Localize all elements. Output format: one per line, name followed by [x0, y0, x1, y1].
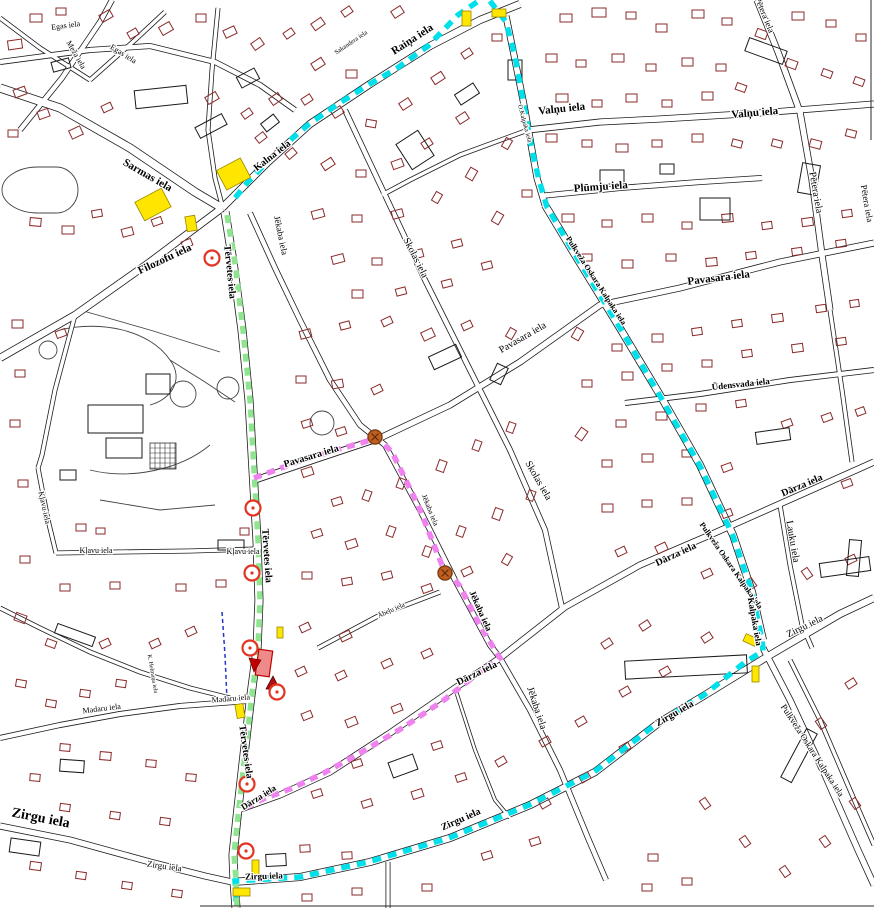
building [352, 888, 362, 895]
building [10, 420, 20, 427]
building [626, 12, 636, 19]
building [771, 313, 783, 322]
street-label: Sakandera iela [333, 29, 369, 56]
building [626, 94, 637, 102]
building [101, 102, 113, 113]
highlighted-object [752, 666, 759, 682]
building [12, 320, 23, 328]
street-label: Zirgu iela [245, 870, 284, 881]
building [7, 39, 22, 50]
building [56, 8, 66, 15]
building [176, 584, 186, 591]
building [15, 370, 25, 377]
park-path [80, 310, 220, 352]
building [841, 479, 853, 489]
building [381, 571, 392, 580]
building [826, 20, 836, 27]
building [45, 639, 57, 649]
building [395, 287, 406, 296]
building [335, 427, 347, 437]
building [602, 220, 612, 227]
street-label: Dārza iela [455, 659, 499, 688]
street-label: Jēkaba iela [272, 215, 290, 256]
building [612, 344, 622, 351]
park-path [60, 326, 176, 405]
building [149, 638, 161, 649]
building [339, 321, 350, 330]
building [361, 799, 373, 809]
bus-stop-dot-icon [244, 849, 247, 852]
building [441, 279, 452, 288]
street-label: Pētera iela [753, 0, 776, 34]
building [662, 364, 672, 371]
building [451, 239, 462, 248]
building [648, 854, 658, 861]
building [652, 140, 662, 147]
building [456, 526, 466, 538]
building [91, 209, 102, 218]
building [431, 741, 443, 751]
building [562, 214, 574, 222]
building [300, 845, 310, 853]
public-building [755, 428, 790, 445]
building [592, 100, 602, 107]
building [335, 670, 347, 681]
route-cyan-raina [231, 2, 477, 203]
building [8, 130, 18, 137]
building [299, 622, 311, 633]
public-building [700, 198, 730, 220]
building [855, 407, 866, 417]
building [465, 167, 477, 181]
street-label: Pulkveža Oskara Kalpaka iela [564, 235, 628, 327]
building [216, 580, 226, 587]
building [311, 529, 323, 539]
street-label: Zirgu iela [654, 699, 696, 730]
building [121, 227, 134, 238]
building [421, 138, 433, 149]
building [122, 881, 133, 889]
building [576, 60, 586, 67]
building [381, 316, 393, 327]
building [60, 803, 71, 811]
building [110, 811, 121, 819]
route-magenta-loop [241, 438, 500, 810]
highlighted-object [185, 215, 197, 232]
building [842, 209, 853, 217]
building [666, 254, 676, 261]
street-label: Plūmju iela [573, 179, 628, 195]
bus-stop-dot-icon [248, 646, 251, 649]
building [682, 878, 692, 885]
street-label: Pulkveža Oskara Kalpaka iela [779, 702, 846, 798]
public-building [819, 557, 870, 578]
park-circle [310, 411, 334, 435]
building [582, 380, 592, 387]
building [80, 689, 91, 697]
building [616, 144, 628, 152]
building [706, 258, 718, 267]
building [850, 299, 860, 307]
building [619, 686, 631, 697]
building [522, 190, 532, 197]
building [345, 538, 358, 549]
building [602, 504, 613, 512]
building [492, 507, 503, 520]
building [809, 139, 822, 150]
road-casing [0, 701, 247, 738]
building [701, 632, 713, 643]
street-label: Raiņa iela [389, 21, 436, 57]
building [399, 98, 413, 111]
building [662, 100, 672, 107]
building [30, 218, 42, 227]
building [546, 134, 557, 142]
building [856, 34, 866, 41]
highlighted-object [462, 11, 471, 26]
street-label: Ābeļu iela [376, 600, 407, 619]
building [816, 304, 827, 312]
building [582, 140, 592, 147]
building [381, 658, 393, 669]
building [422, 546, 432, 558]
building [342, 852, 352, 860]
building [546, 54, 557, 62]
street-label: Pētera iela [859, 184, 874, 223]
building [99, 638, 111, 649]
building [696, 404, 706, 411]
building [481, 851, 493, 861]
building [29, 861, 41, 870]
building [731, 139, 742, 148]
building [159, 22, 174, 36]
building [311, 57, 325, 70]
building [656, 24, 667, 32]
building [302, 572, 312, 579]
road-surface [222, 4, 520, 208]
building [186, 774, 197, 782]
road-surface [0, 826, 232, 882]
public-building [660, 164, 674, 174]
building [646, 64, 656, 71]
building [642, 500, 652, 507]
building [742, 349, 753, 357]
public-building [455, 83, 480, 105]
building [422, 884, 432, 891]
building [311, 209, 325, 220]
public-building [146, 374, 170, 394]
building [421, 648, 433, 659]
bus-stop-dot-icon [275, 690, 278, 693]
building [501, 553, 512, 565]
building [692, 10, 704, 18]
highlighted-object [135, 188, 171, 221]
building [255, 132, 267, 144]
building [30, 14, 42, 22]
road-surface [0, 88, 222, 208]
public-building [266, 853, 287, 866]
bus-stop-dot-icon [210, 256, 213, 259]
public-building [60, 470, 76, 480]
city-map[interactable]: Egas ielaEgas ielaMeža ielaSarmas ielaFi… [0, 0, 874, 908]
building [529, 837, 541, 847]
building [781, 419, 793, 429]
road-surface [318, 592, 440, 648]
building [702, 360, 712, 367]
building [301, 94, 313, 105]
building [642, 454, 653, 462]
building [45, 699, 56, 708]
building [601, 638, 613, 649]
building [821, 413, 833, 423]
building [699, 797, 710, 809]
building [732, 319, 743, 327]
building [436, 459, 447, 472]
building [371, 384, 383, 395]
road-casing [222, 4, 520, 208]
building [391, 6, 405, 19]
public-building [88, 405, 143, 433]
building [196, 14, 206, 22]
road-casing [455, 688, 510, 818]
building [321, 157, 335, 170]
building [60, 584, 70, 591]
bus-stop-dot-icon [245, 782, 248, 785]
building [341, 577, 352, 586]
building [560, 14, 572, 22]
building [853, 77, 865, 87]
building [845, 678, 857, 689]
street-label: Kļavu iela [36, 490, 53, 525]
building [659, 666, 671, 677]
public-building [60, 759, 85, 773]
building [682, 498, 692, 505]
building [801, 217, 813, 226]
building [76, 524, 86, 531]
building [391, 158, 404, 169]
building [461, 566, 473, 577]
building [792, 12, 804, 20]
building [331, 497, 343, 507]
building [682, 222, 692, 229]
building [345, 716, 358, 728]
building [472, 440, 482, 452]
building [791, 343, 803, 352]
building [421, 584, 433, 594]
building [69, 126, 84, 139]
public-building [261, 114, 280, 132]
building [241, 108, 253, 119]
building [492, 34, 502, 41]
building [481, 261, 492, 270]
park-grid [150, 443, 176, 469]
building [736, 399, 747, 407]
building [172, 889, 183, 897]
building [845, 129, 856, 138]
park-path [100, 500, 215, 510]
building [20, 556, 30, 563]
building [622, 260, 633, 268]
building [692, 327, 703, 335]
building [461, 48, 473, 59]
building [116, 679, 127, 687]
building [702, 92, 713, 100]
building [352, 290, 363, 298]
public-building [134, 85, 188, 108]
building [295, 666, 307, 677]
building [386, 526, 396, 538]
street-label: Kļavu iela [226, 547, 260, 557]
road-surface [0, 608, 230, 698]
public-building [106, 438, 142, 458]
building [76, 871, 87, 879]
street-label: Egas iela [51, 19, 82, 32]
building [722, 18, 732, 25]
street-label: Valņu iela [538, 101, 586, 118]
building [612, 54, 624, 62]
building [302, 894, 312, 901]
building [771, 139, 782, 148]
building [616, 420, 626, 427]
building [716, 64, 726, 71]
street-label: Skolas iela [400, 236, 430, 280]
highlighted-object [235, 703, 245, 718]
building [431, 71, 445, 84]
building [735, 83, 747, 93]
building [652, 334, 663, 342]
building [491, 211, 503, 225]
park-circle [217, 377, 239, 399]
building [431, 191, 442, 203]
building [571, 327, 583, 341]
building [346, 70, 357, 78]
building [301, 466, 314, 477]
building [792, 247, 803, 255]
building [151, 217, 163, 227]
building [30, 774, 41, 782]
building [575, 716, 587, 727]
building [62, 226, 74, 234]
guide-dashed-line [222, 612, 227, 700]
building [311, 17, 325, 30]
building [456, 112, 470, 125]
highlighted-object [277, 627, 283, 638]
building [721, 463, 733, 473]
map-canvas[interactable]: Egas ielaEgas ielaMeža ielaSarmas ielaFi… [0, 0, 874, 908]
building [819, 835, 830, 847]
building [762, 221, 773, 229]
building [779, 865, 790, 877]
building [642, 884, 652, 891]
park-circle [39, 341, 57, 359]
building [801, 567, 812, 579]
building [251, 38, 265, 51]
building [592, 8, 606, 17]
building [352, 215, 362, 222]
public-building [388, 754, 418, 778]
building [421, 328, 436, 341]
building [495, 756, 507, 767]
park-path [2, 167, 78, 213]
building [301, 710, 313, 720]
bus-stop-dot-icon [251, 506, 254, 509]
street-label: Zirgu iela [146, 859, 182, 874]
building [615, 546, 627, 557]
public-building [396, 130, 434, 169]
building [642, 214, 653, 222]
building [656, 412, 667, 420]
building [311, 789, 323, 799]
building [365, 119, 376, 128]
building [160, 817, 171, 825]
street-label: Valņu iela [731, 105, 779, 121]
highlighted-object [492, 9, 506, 17]
street-label: Pavasara iela [687, 268, 751, 288]
street-label: Pētera iela [806, 171, 824, 215]
street-label: Kļavu iela [79, 546, 113, 556]
building [722, 214, 734, 223]
building [100, 752, 112, 761]
building [146, 760, 157, 768]
building [701, 568, 713, 579]
building [15, 679, 26, 688]
building [622, 372, 633, 380]
building [362, 490, 372, 502]
park-circle [170, 381, 196, 407]
building [18, 480, 28, 487]
building [639, 620, 651, 631]
building [223, 26, 237, 38]
road-surface [830, 310, 852, 462]
building [692, 134, 703, 142]
building [411, 788, 424, 799]
building [372, 258, 382, 265]
building [506, 422, 516, 434]
building [341, 6, 353, 17]
building [240, 528, 249, 535]
building [821, 69, 833, 79]
building [746, 251, 757, 259]
road-casing [0, 608, 230, 698]
building [185, 626, 197, 637]
building [296, 376, 306, 383]
highlighted-object [233, 888, 250, 896]
building [602, 460, 612, 467]
building [391, 703, 403, 713]
public-building [9, 838, 41, 856]
building [682, 58, 693, 66]
building [455, 773, 467, 783]
building [461, 320, 473, 331]
building [110, 582, 120, 589]
building [356, 170, 366, 177]
bus-stop-dot-icon [250, 571, 253, 574]
building [556, 94, 568, 102]
building [739, 835, 750, 847]
building [283, 28, 295, 39]
building [60, 744, 71, 752]
building [331, 254, 345, 265]
building [575, 427, 588, 441]
building [96, 528, 105, 534]
